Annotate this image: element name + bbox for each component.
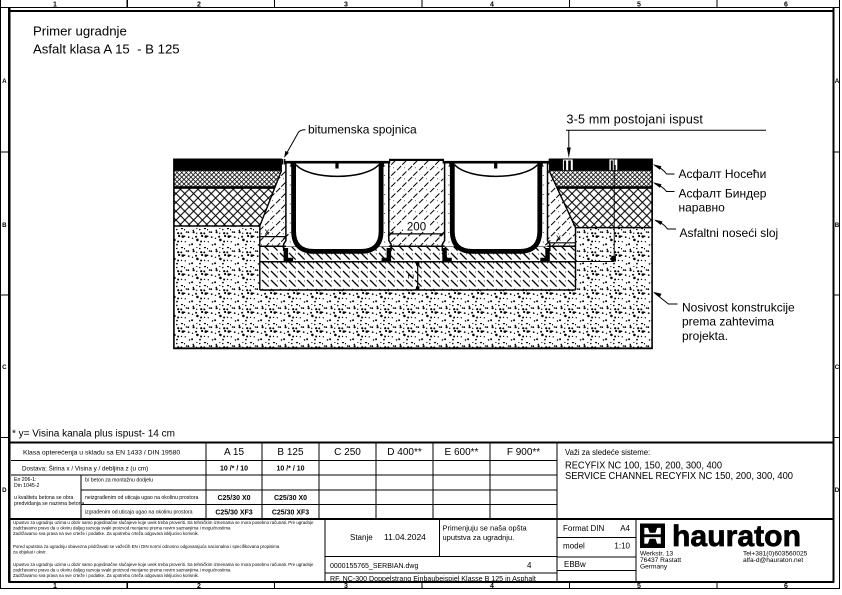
svg-text:prema zahtevima: prema zahtevima [682, 315, 774, 329]
svg-text:Asfaltni noseći sloj: Asfaltni noseći sloj [680, 226, 779, 240]
svg-text:B: B [2, 222, 7, 229]
svg-text:Primer ugradnje: Primer ugradnje [33, 24, 127, 39]
svg-text:C25/30 XF3: C25/30 XF3 [272, 510, 309, 517]
svg-text:zadržavamo pravo da u okviru d: zadržavamo pravo da u okviru daljeg razv… [13, 568, 231, 573]
svg-text:Din 1045-2: Din 1045-2 [14, 483, 39, 489]
svg-text:C25/30 XF3: C25/30 XF3 [215, 510, 252, 517]
svg-text:x: x [265, 227, 270, 238]
svg-text:200: 200 [407, 221, 426, 233]
svg-text:Format DIN: Format DIN [563, 524, 605, 533]
svg-text:uputstva za ugradnju.: uputstva za ugradnju. [443, 533, 515, 542]
svg-text:projekta.: projekta. [682, 329, 728, 343]
svg-text:3-5 mm postojani ispust: 3-5 mm postojani ispust [567, 113, 704, 127]
svg-text:B 125: B 125 [277, 447, 304, 458]
svg-text:F 900**: F 900** [507, 447, 540, 458]
svg-text:Germany: Germany [640, 564, 668, 571]
svg-text:C 250: C 250 [334, 447, 361, 458]
svg-text:C25/30 X0: C25/30 X0 [274, 495, 307, 502]
svg-text:EBBw: EBBw [564, 560, 586, 569]
svg-text:Stanje: Stanje [350, 533, 373, 542]
svg-text:4: 4 [527, 561, 532, 570]
svg-text:C25/30 X0: C25/30 X0 [217, 495, 250, 502]
svg-text:3: 3 [344, 583, 348, 590]
svg-text:Upustvo za ugradnju uzima u ob: Upustvo za ugradnju uzima u obzir samo p… [13, 520, 314, 525]
svg-text:A: A [2, 78, 7, 85]
svg-text:model: model [563, 542, 585, 551]
svg-text:Asfalt klasa A 15 - B 125: Asfalt klasa A 15 - B 125 [33, 42, 180, 57]
svg-text:Važi za sledeće sisteme:: Važi za sledeće sisteme: [565, 448, 650, 457]
svg-text:RF. NC-300 Doppelstrang Einbau: RF. NC-300 Doppelstrang Einbaubeispiel K… [330, 575, 536, 583]
svg-text:neizgrađenim od uticaja ugao n: neizgrađenim od uticaja ugao na okolinu … [85, 495, 198, 501]
svg-text:D: D [835, 487, 840, 494]
svg-text:2: 2 [197, 2, 201, 9]
svg-text:izgrađenim od uticaja ugao na: izgrađenim od uticaja ugao na okolinu pr… [85, 510, 193, 516]
svg-text:Асфалт Биндер: Асфалт Биндер [679, 186, 767, 200]
svg-text:11.04.2024: 11.04.2024 [384, 532, 426, 542]
svg-text:zadržavamo pravo da u okviru d: zadržavamo pravo da u okviru daljeg razv… [13, 526, 231, 531]
svg-text:D: D [2, 487, 7, 494]
svg-text:5: 5 [637, 583, 641, 590]
svg-text:b/ beton za montažnu dodjelu: b/ beton za montažnu dodjelu [85, 478, 153, 484]
svg-text:1:10: 1:10 [614, 542, 630, 551]
svg-text:RECYFIX NC 100, 150, 200, 300,: RECYFIX NC 100, 150, 200, 300, 400 [565, 461, 722, 472]
svg-text:Асфалт Носећи: Асфалт Носећи [679, 167, 767, 181]
svg-text:3: 3 [344, 2, 348, 9]
svg-text:наравно: наравно [679, 200, 726, 214]
svg-text:SERVICE CHANNEL RECYFIX NC 150: SERVICE CHANNEL RECYFIX NC 150, 200, 300… [565, 471, 793, 482]
svg-text:C: C [2, 364, 7, 371]
svg-text:Dostava: Širina x / Visina y /: Dostava: Širina x / Visina y / debljina … [22, 464, 148, 473]
svg-text:Primenjuju se naša opšta: Primenjuju se naša opšta [443, 524, 528, 533]
svg-text:alfa-d@hauraton.net: alfa-d@hauraton.net [743, 557, 803, 564]
svg-text:0000155765_SERBIAN.dwg: 0000155765_SERBIAN.dwg [330, 563, 418, 570]
svg-text:4: 4 [490, 2, 494, 9]
svg-text:Pored uputstva za ugradnju oba: Pored uputstva za ugradnju obavezna prid… [13, 544, 280, 549]
svg-text:* y= Visina kanala plus ispust: * y= Visina kanala plus ispust- 14 cm [12, 429, 175, 440]
svg-text:hauraton: hauraton [672, 520, 801, 553]
svg-text:6: 6 [784, 583, 788, 590]
svg-text:6: 6 [784, 2, 788, 9]
svg-text:10 /* / 10: 10 /* / 10 [220, 466, 248, 473]
svg-text:A 15: A 15 [224, 447, 244, 458]
svg-text:Zadržavamo sva prava na sve cr: Zadržavamo sva prava na sve crteže i pod… [13, 573, 199, 578]
svg-text:1: 1 [53, 583, 57, 590]
svg-text:x: x [556, 233, 561, 244]
svg-text:Upustvo za ugradnju uzima u ob: Upustvo za ugradnju uzima u obzir samo p… [13, 562, 314, 567]
svg-text:predviđanja se nazivna betona: predviđanja se nazivna betona [14, 501, 84, 507]
svg-text:4: 4 [490, 583, 494, 590]
svg-text:E 600**: E 600** [445, 447, 479, 458]
svg-text:D 400**: D 400** [387, 447, 422, 458]
svg-text:10 /* / 10: 10 /* / 10 [276, 466, 304, 473]
svg-text:1: 1 [53, 2, 57, 9]
svg-text:bitumenska spojnica: bitumenska spojnica [308, 123, 417, 137]
svg-text:5: 5 [637, 2, 641, 9]
svg-text:Nosivost konstrukcije: Nosivost konstrukcije [682, 300, 795, 314]
svg-text:Zadržavamo sva prava na sve cr: Zadržavamo sva prava na sve crteže i pod… [13, 531, 199, 536]
svg-text:za objekat i okvir.: za objekat i okvir. [13, 550, 47, 555]
svg-text:Klasa opterećenja u skladu sa: Klasa opterećenja u skladu sa EN 1433 / … [23, 450, 180, 457]
svg-text:C: C [835, 364, 840, 371]
svg-text:z: z [405, 274, 417, 279]
svg-text:A: A [835, 78, 840, 85]
svg-text:B: B [835, 222, 840, 229]
svg-text:A4: A4 [620, 524, 630, 533]
svg-text:2: 2 [197, 583, 201, 590]
